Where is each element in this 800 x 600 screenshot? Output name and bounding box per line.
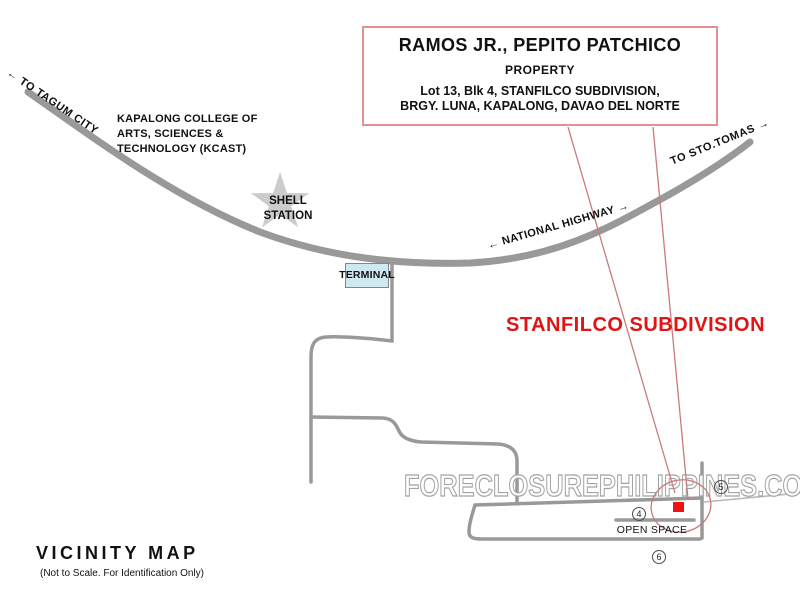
- shell-label-line1: SHELL: [246, 194, 330, 209]
- vicinity-map-note: (Not to Scale. For Identification Only): [40, 568, 204, 579]
- callout-line-left: [568, 127, 675, 493]
- block-number-4: 4: [632, 507, 646, 521]
- college-label-line1: KAPALONG COLLEGE OF: [117, 112, 257, 127]
- vicinity-map: FORECLOSUREPHILIPPINES.COM RAMOS JR., PE…: [0, 0, 800, 600]
- block-number-5: 5: [714, 480, 728, 494]
- callout-line-right: [653, 127, 688, 499]
- property-title-box: RAMOS JR., PEPITO PATCHICO PROPERTY Lot …: [362, 26, 718, 126]
- property-owner-name: RAMOS JR., PEPITO PATCHICO: [399, 35, 681, 56]
- vicinity-map-title: VICINITY MAP: [36, 543, 199, 564]
- college-label-line3: TECHNOLOGY (KCAST): [117, 142, 257, 157]
- shell-label-line2: STATION: [246, 209, 330, 224]
- open-space-label: OPEN SPACE: [610, 524, 694, 536]
- block-number-6: 6: [652, 550, 666, 564]
- property-address: Lot 13, Blk 4, STANFILCO SUBDIVISION, BR…: [400, 84, 680, 114]
- property-address-line1: Lot 13, Blk 4, STANFILCO SUBDIVISION,: [400, 84, 680, 99]
- property-address-line2: BRGY. LUNA, KAPALONG, DAVAO DEL NORTE: [400, 99, 680, 114]
- shell-station-label: SHELL STATION: [246, 194, 330, 224]
- stanfilco-subdivision-label: STANFILCO SUBDIVISION: [506, 314, 765, 337]
- terminal-label: TERMINAL: [334, 269, 400, 281]
- kapalong-college-label: KAPALONG COLLEGE OF ARTS, SCIENCES & TEC…: [117, 112, 257, 157]
- property-marker: [673, 502, 684, 512]
- property-subtitle: PROPERTY: [505, 63, 575, 77]
- college-label-line2: ARTS, SCIENCES &: [117, 127, 257, 142]
